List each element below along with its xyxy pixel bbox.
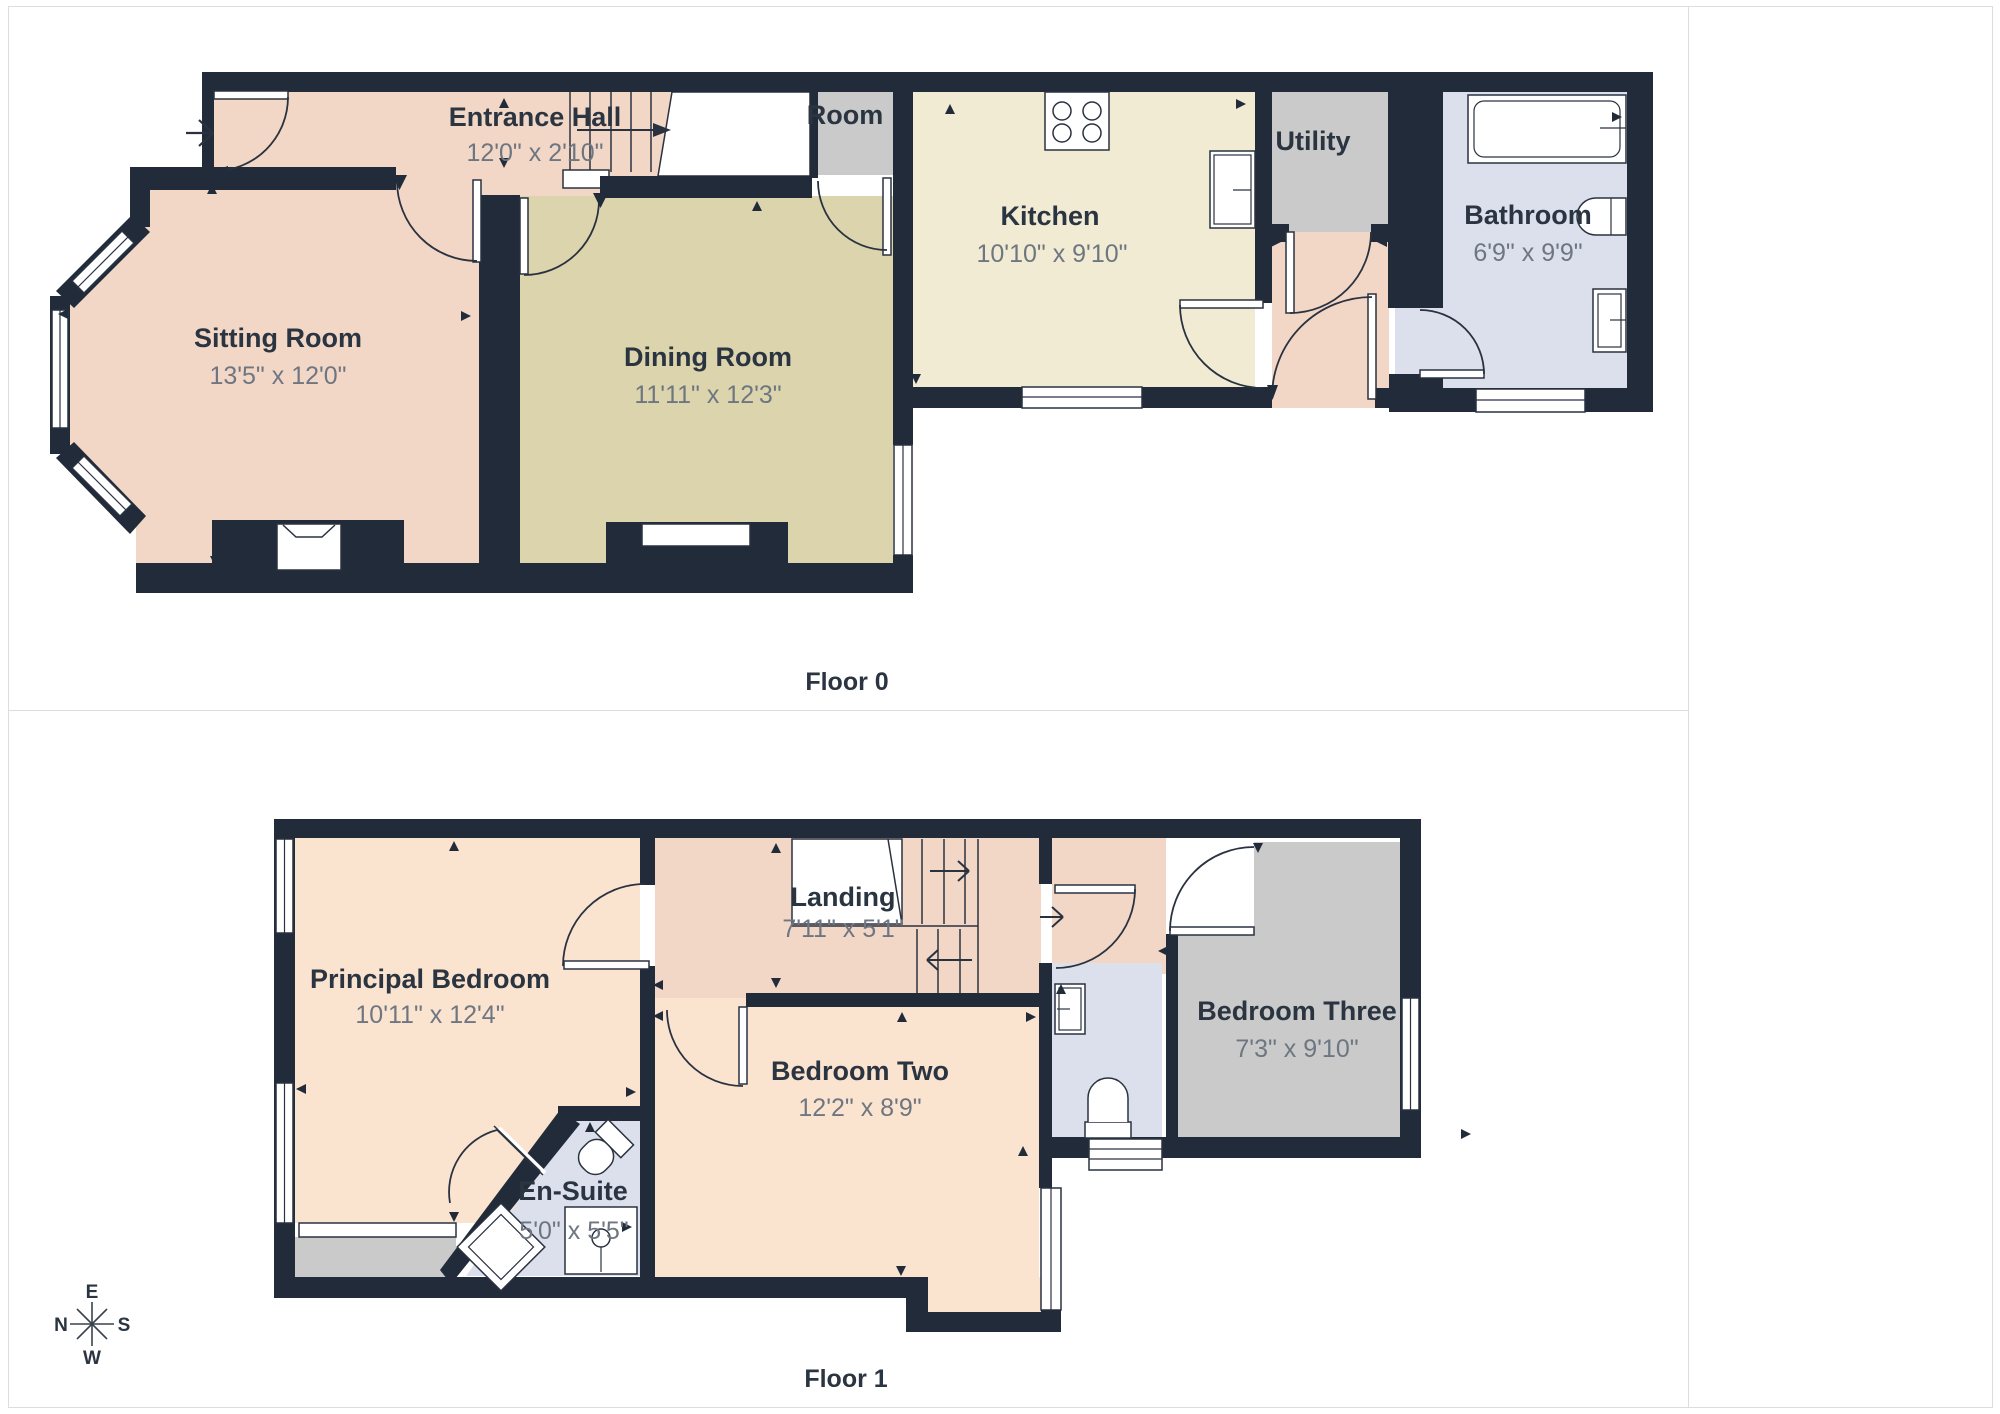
svg-text:7'11" x 5'1": 7'11" x 5'1" [782,915,903,943]
svg-text:Floor 0: Floor 0 [805,668,888,696]
svg-text:Bedroom Two: Bedroom Two [771,1056,949,1086]
svg-text:Room: Room [807,100,884,130]
svg-text:Landing: Landing [791,882,896,912]
svg-text:Kitchen: Kitchen [1000,201,1099,231]
svg-text:Floor 1: Floor 1 [804,1365,887,1393]
svg-text:5'0" x 5'5": 5'0" x 5'5" [519,1217,628,1245]
svg-text:12'0" x 2'10": 12'0" x 2'10" [466,139,603,167]
svg-text:W: W [83,1348,101,1369]
svg-text:Utility: Utility [1275,126,1350,156]
svg-text:Sitting Room: Sitting Room [194,323,362,353]
svg-text:N: N [54,1315,68,1336]
svg-text:13'5" x 12'0": 13'5" x 12'0" [209,362,346,390]
svg-text:S: S [118,1315,131,1336]
svg-text:Bathroom: Bathroom [1464,200,1592,230]
svg-text:6'9" x 9'9": 6'9" x 9'9" [1473,239,1582,267]
svg-text:En-Suite: En-Suite [518,1176,628,1206]
svg-text:7'3" x 9'10": 7'3" x 9'10" [1235,1035,1358,1063]
svg-text:12'2" x 8'9": 12'2" x 8'9" [798,1094,921,1122]
svg-text:Bedroom Three: Bedroom Three [1197,996,1397,1026]
svg-text:10'10" x 9'10": 10'10" x 9'10" [976,240,1127,268]
svg-text:10'11" x 12'4": 10'11" x 12'4" [355,1001,504,1029]
svg-text:Dining Room: Dining Room [624,342,792,372]
svg-text:Entrance Hall: Entrance Hall [449,102,622,132]
svg-text:E: E [86,1282,99,1303]
svg-text:11'11" x 12'3": 11'11" x 12'3" [634,381,781,409]
svg-text:Principal Bedroom: Principal Bedroom [310,964,550,994]
